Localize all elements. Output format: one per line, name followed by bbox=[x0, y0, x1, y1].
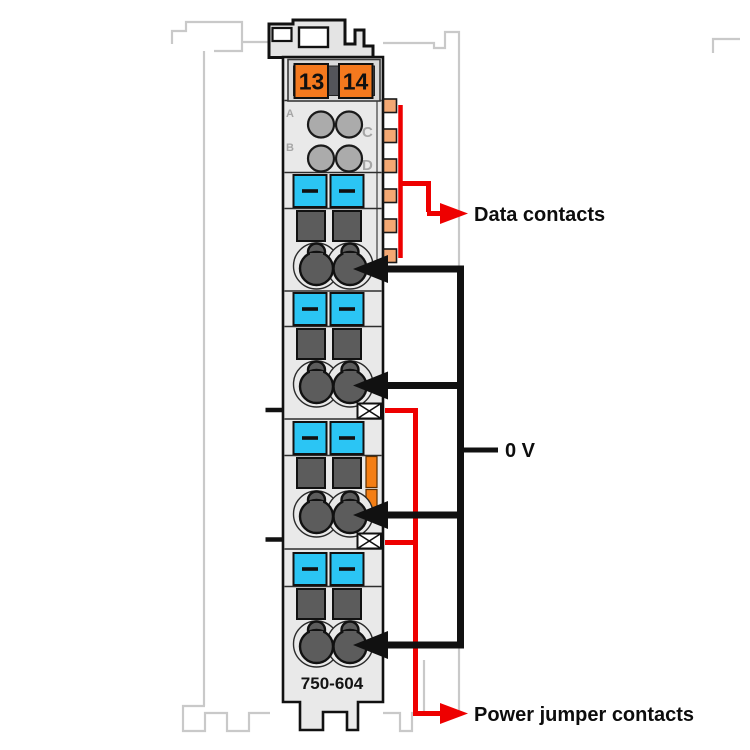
red-arrow-icon bbox=[440, 703, 468, 724]
data-contact-tab bbox=[384, 159, 397, 173]
minus-mark bbox=[302, 307, 318, 311]
jumper-contact-symbol bbox=[358, 404, 382, 419]
din-rail-outline-left bbox=[172, 22, 270, 731]
terminal-junction bbox=[310, 253, 323, 264]
clip-opening-large bbox=[299, 28, 328, 48]
data-contact-tabs bbox=[384, 99, 397, 263]
data-contact-tab bbox=[384, 99, 397, 113]
zero-v-bus-line bbox=[384, 269, 498, 649]
contact-hole-a bbox=[308, 112, 334, 138]
terminal-13-label: 13 bbox=[299, 69, 325, 95]
contact-hole-b bbox=[308, 146, 334, 172]
neighbour-corner-outline-topright bbox=[713, 39, 740, 53]
clamp-slot-dark bbox=[297, 211, 325, 241]
minus-mark bbox=[339, 436, 355, 440]
red-bracket-branch bbox=[400, 184, 429, 213]
red-jumper-path bbox=[385, 411, 441, 714]
power-feed-block: 13 14 bbox=[288, 60, 380, 102]
terminal-junction bbox=[310, 631, 323, 642]
minus-mark bbox=[339, 189, 355, 193]
clip-opening-small bbox=[273, 28, 292, 41]
contact-label-d: D bbox=[362, 157, 373, 174]
clamp-unit-4 bbox=[294, 553, 374, 667]
minus-mark bbox=[302, 436, 318, 440]
clamp-unit-2 bbox=[294, 293, 374, 407]
minus-mark bbox=[302, 189, 318, 193]
terminal-junction bbox=[310, 501, 323, 512]
clamp-slot-dark bbox=[297, 329, 325, 359]
diagram-canvas: { "module": { "part_number": "750-604", … bbox=[0, 0, 750, 750]
clamp-slot-dark bbox=[333, 329, 361, 359]
data-contacts-label: Data contacts bbox=[474, 204, 605, 226]
clamp-slot-dark bbox=[333, 211, 361, 241]
part-number-label: 750-604 bbox=[301, 674, 364, 693]
terminal-junction bbox=[344, 253, 357, 264]
terminal-junction bbox=[310, 371, 323, 382]
clamp-slot-dark bbox=[297, 589, 325, 619]
clamp-slot-dark bbox=[333, 589, 361, 619]
neighbour-clip-outline-left bbox=[172, 22, 268, 51]
zero-v-label: 0 V bbox=[505, 440, 536, 462]
data-contact-tab bbox=[384, 129, 397, 143]
power-jumper-line bbox=[385, 411, 468, 725]
orange-latch bbox=[366, 457, 377, 488]
contact-hole-c bbox=[336, 112, 362, 138]
terminal-junction bbox=[344, 501, 357, 512]
contact-label-c: C bbox=[362, 124, 373, 141]
minus-mark bbox=[339, 307, 355, 311]
contact-hole-d bbox=[336, 146, 362, 172]
contact-label-a: A bbox=[286, 108, 294, 120]
red-arrow-icon bbox=[440, 203, 468, 224]
terminal-junction bbox=[344, 371, 357, 382]
data-contacts-bracket-line bbox=[400, 105, 468, 258]
module-diagram: 13 14 A B C D bbox=[0, 0, 750, 750]
terminal-junction bbox=[344, 631, 357, 642]
data-contact-tab bbox=[384, 189, 397, 203]
jumper-contact-symbol bbox=[358, 534, 382, 549]
neighbour-foot-outline-left bbox=[183, 706, 270, 731]
minus-mark bbox=[339, 567, 355, 571]
clamp-slot-dark bbox=[333, 458, 361, 488]
din-rail-outline-right bbox=[383, 32, 740, 731]
terminal-14-label: 14 bbox=[343, 69, 369, 95]
module-750-604: 13 14 A B C D bbox=[266, 20, 397, 730]
contact-label-b: B bbox=[286, 142, 294, 154]
minus-mark bbox=[302, 567, 318, 571]
data-contact-tab bbox=[384, 219, 397, 233]
clamp-slot-dark bbox=[297, 458, 325, 488]
power-jumper-contacts-label: Power jumper contacts bbox=[474, 704, 694, 726]
